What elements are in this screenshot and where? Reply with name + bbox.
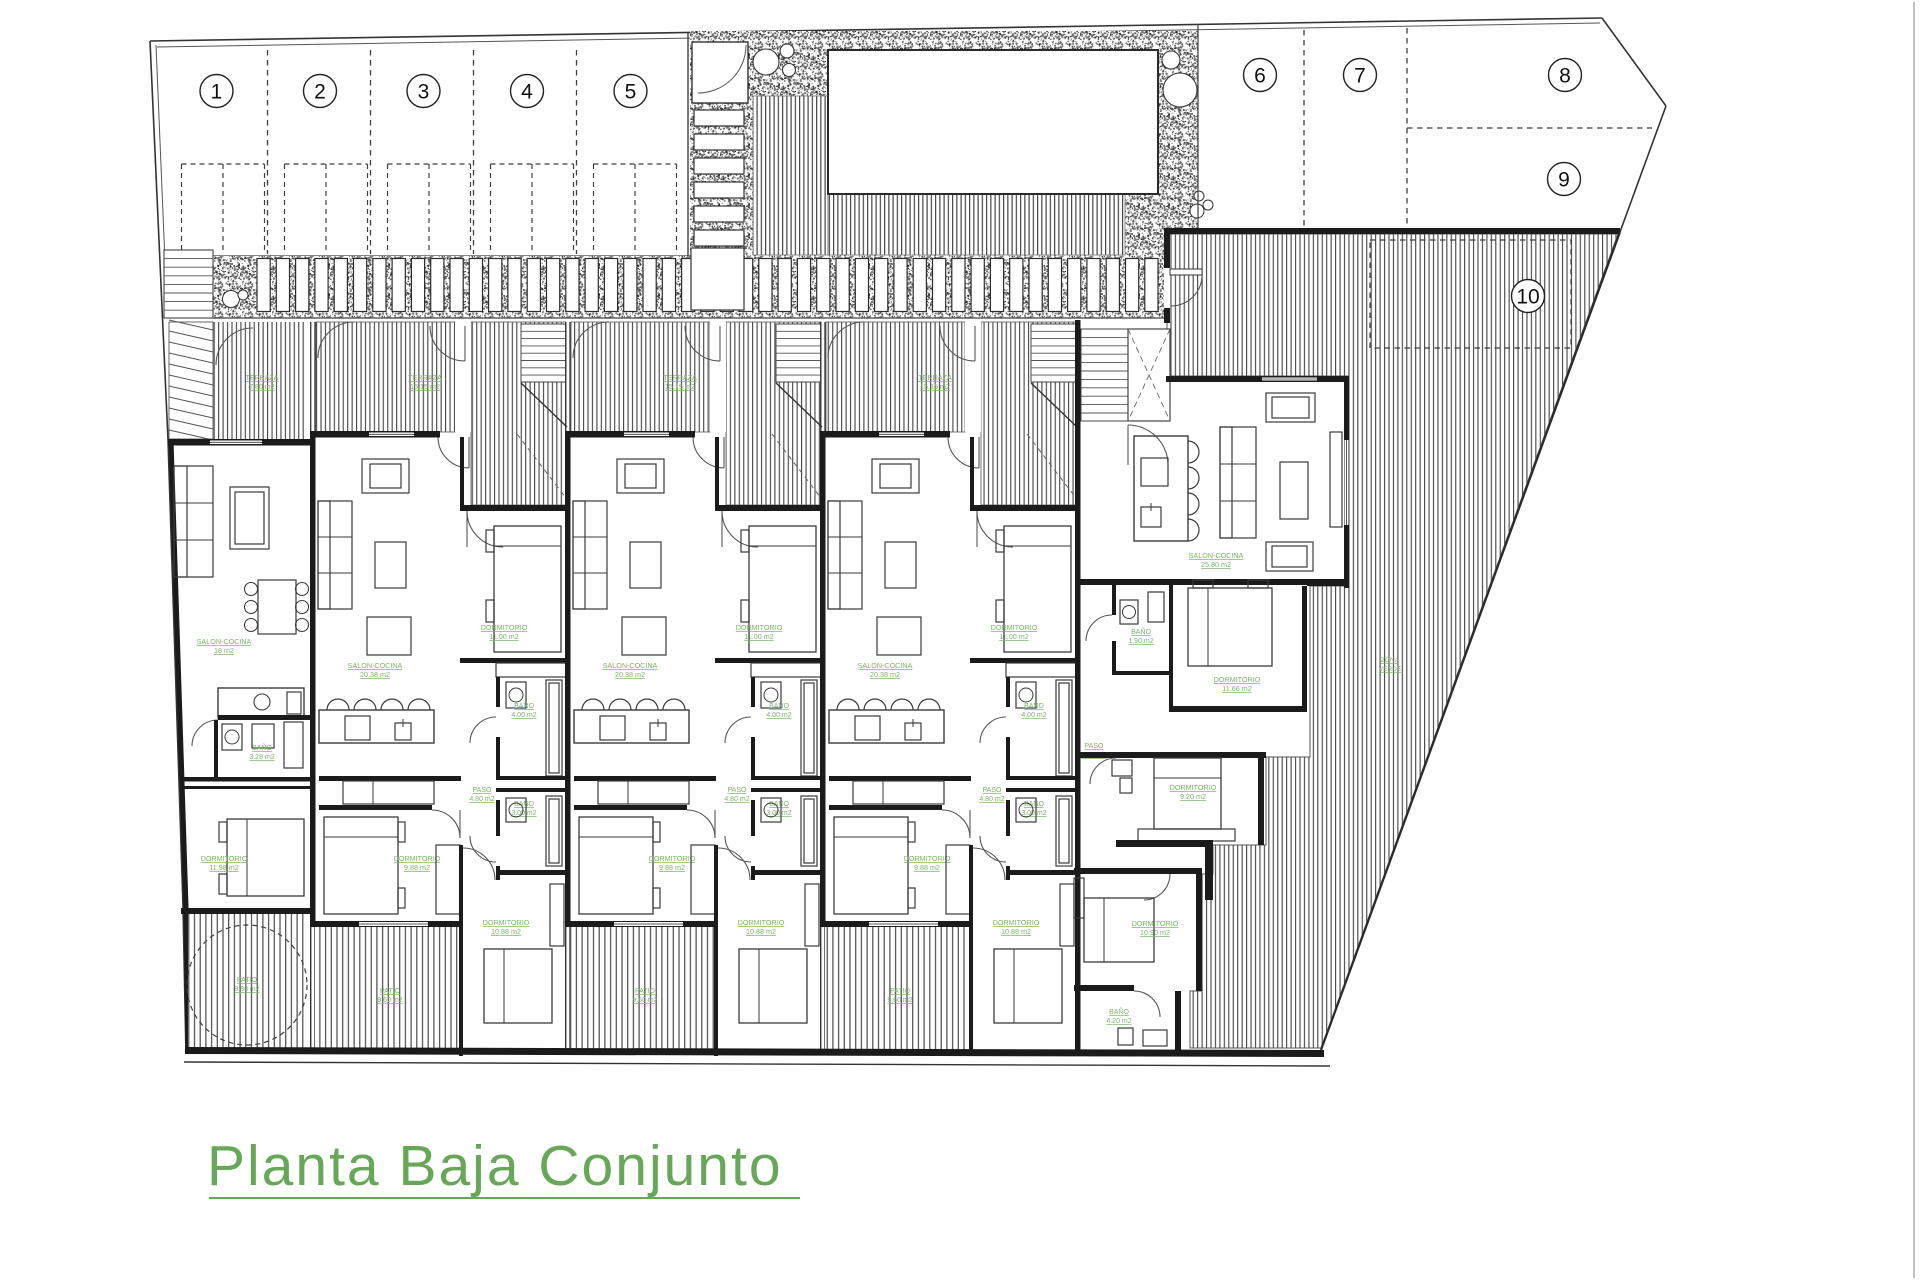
svg-text:7.80 m2: 7.80 m2	[249, 384, 274, 391]
svg-text:9.20 m2: 9.20 m2	[1180, 792, 1206, 801]
svg-text:15.15 m2: 15.15 m2	[920, 382, 950, 391]
svg-text:15.15 m2: 15.15 m2	[410, 382, 440, 391]
svg-text:BAÑO: BAÑO	[252, 743, 272, 752]
svg-text:10.88 m2: 10.88 m2	[491, 927, 521, 936]
svg-text:SALON-COCINA: SALON-COCINA	[1189, 551, 1244, 560]
svg-text:11.00 m2: 11.00 m2	[489, 632, 518, 641]
svg-text:PATIO: PATIO	[380, 988, 401, 995]
svg-text:9.88 m2: 9.88 m2	[914, 863, 940, 872]
svg-text:3.00 m2: 3.00 m2	[1021, 810, 1046, 817]
svg-text:25.80 m2: 25.80 m2	[1201, 560, 1231, 569]
svg-text:ZONA: ZONA	[1381, 657, 1400, 664]
svg-text:1: 1	[211, 81, 223, 104]
svg-text:20.38 m2: 20.38 m2	[870, 670, 900, 679]
svg-text:PASO: PASO	[983, 787, 1002, 794]
svg-text:DORMITORIO: DORMITORIO	[1170, 783, 1217, 792]
svg-text:10.90 m2: 10.90 m2	[1140, 928, 1170, 937]
svg-text:PATIO: PATIO	[237, 977, 258, 984]
svg-text:TERRAZA: TERRAZA	[408, 373, 442, 382]
svg-text:DORMITORIO: DORMITORIO	[649, 854, 696, 863]
svg-text:6: 6	[1254, 65, 1266, 88]
svg-text:9.88 m2: 9.88 m2	[234, 986, 259, 993]
svg-text:BAÑO: BAÑO	[769, 701, 789, 710]
svg-text:TERRAZA: TERRAZA	[663, 373, 697, 382]
svg-text:DORMITORIO: DORMITORIO	[991, 623, 1038, 632]
svg-text:4.80 m2: 4.80 m2	[469, 796, 494, 803]
svg-text:4.00 m2: 4.00 m2	[766, 712, 791, 719]
svg-text:20.38 m2: 20.38 m2	[360, 670, 390, 679]
svg-text:DORMITORIO: DORMITORIO	[1214, 675, 1261, 684]
svg-text:9.60 m2: 9.60 m2	[377, 997, 402, 1004]
svg-text:TERRAZA: TERRAZA	[918, 373, 952, 382]
svg-text:15.15 m2: 15.15 m2	[665, 382, 695, 391]
svg-text:11.00 m2: 11.00 m2	[744, 632, 773, 641]
svg-text:10.88 m2: 10.88 m2	[1001, 927, 1031, 936]
svg-text:DORMITORIO: DORMITORIO	[904, 854, 951, 863]
svg-text:4.00 m2: 4.00 m2	[511, 712, 536, 719]
svg-text:SALON-COCINA: SALON-COCINA	[348, 661, 403, 670]
svg-text:BAÑO: BAÑO	[1131, 627, 1151, 636]
svg-text:PASO: PASO	[473, 787, 492, 794]
svg-text:PASO: PASO	[1085, 743, 1104, 750]
svg-text:SALON-COCINA: SALON-COCINA	[603, 661, 658, 670]
svg-text:PATIO: PATIO	[635, 988, 656, 995]
svg-text:11.98 m2: 11.98 m2	[209, 863, 238, 872]
svg-text:PATIO: PATIO	[890, 988, 911, 995]
svg-text:SALON-COCINA: SALON-COCINA	[858, 661, 913, 670]
svg-text:3.28 m2: 3.28 m2	[249, 754, 274, 761]
svg-text:7: 7	[1354, 65, 1366, 88]
svg-text:9.88 m2: 9.88 m2	[659, 863, 685, 872]
svg-text:9: 9	[1558, 169, 1570, 192]
svg-text:3.00 m2: 3.00 m2	[766, 810, 791, 817]
svg-text:BAÑO: BAÑO	[1109, 1007, 1129, 1016]
svg-text:4.00 m2: 4.00 m2	[1021, 712, 1046, 719]
svg-text:DORMITORIO: DORMITORIO	[483, 918, 530, 927]
svg-text:SALON-COCINA: SALON-COCINA	[197, 637, 252, 646]
svg-text:18 m2: 18 m2	[214, 646, 234, 655]
svg-text:2: 2	[314, 81, 326, 104]
svg-text:9.60 m2: 9.60 m2	[887, 997, 912, 1004]
svg-text:10: 10	[1516, 286, 1539, 309]
svg-text:1.90 m2: 1.90 m2	[1128, 638, 1153, 645]
svg-text:DORMITORIO: DORMITORIO	[736, 623, 783, 632]
svg-text:5: 5	[625, 81, 637, 104]
svg-text:4.20 m2: 4.20 m2	[1106, 1018, 1131, 1025]
svg-text:DORMITORIO: DORMITORIO	[201, 854, 248, 863]
svg-text:DORMITORIO: DORMITORIO	[1132, 919, 1179, 928]
svg-text:DORMITORIO: DORMITORIO	[481, 623, 528, 632]
svg-text:BAÑO: BAÑO	[1024, 701, 1044, 710]
svg-text:BAÑO: BAÑO	[514, 701, 534, 710]
svg-text:9.60 m2: 9.60 m2	[632, 997, 657, 1004]
svg-text:VERDE: VERDE	[1379, 666, 1402, 673]
svg-text:11.66 m2: 11.66 m2	[1222, 684, 1251, 693]
svg-text:TERRAZA: TERRAZA	[246, 375, 279, 382]
svg-text:4: 4	[521, 81, 533, 104]
svg-text:PASO: PASO	[728, 787, 747, 794]
svg-text:4.80 m2: 4.80 m2	[724, 796, 749, 803]
svg-text:10.88 m2: 10.88 m2	[746, 927, 776, 936]
svg-text:9.88 m2: 9.88 m2	[404, 863, 430, 872]
svg-text:DORMITORIO: DORMITORIO	[993, 918, 1040, 927]
svg-text:11.00 m2: 11.00 m2	[999, 632, 1028, 641]
svg-text:3.00 m2: 3.00 m2	[511, 810, 536, 817]
svg-text:Planta Baja Conjunto: Planta Baja Conjunto	[207, 1134, 783, 1198]
svg-text:DORMITORIO: DORMITORIO	[738, 918, 785, 927]
svg-text:8: 8	[1559, 65, 1571, 88]
svg-text:DORMITORIO: DORMITORIO	[394, 854, 441, 863]
svg-text:20.38 m2: 20.38 m2	[615, 670, 645, 679]
svg-text:3: 3	[418, 81, 430, 104]
svg-text:4.80 m2: 4.80 m2	[979, 796, 1004, 803]
